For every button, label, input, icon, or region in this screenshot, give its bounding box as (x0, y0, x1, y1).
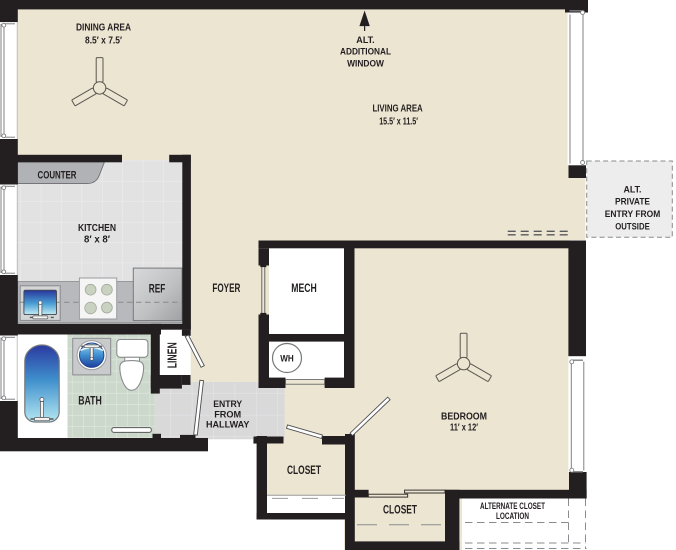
svg-text:ENTRY: ENTRY (213, 399, 243, 410)
svg-text:MECH: MECH (291, 282, 317, 295)
svg-text:WINDOW: WINDOW (347, 58, 385, 69)
svg-text:LINEN: LINEN (165, 342, 179, 368)
svg-text:ENTRY FROM: ENTRY FROM (605, 209, 661, 220)
svg-text:15.5′ x 11.5′: 15.5′ x 11.5′ (379, 117, 418, 128)
svg-text:8′ x 8′: 8′ x 8′ (84, 235, 110, 246)
svg-text:ALT.: ALT. (356, 35, 374, 46)
svg-text:DINING AREA: DINING AREA (76, 23, 131, 34)
svg-text:KITCHEN: KITCHEN (78, 223, 116, 234)
svg-text:PRIVATE: PRIVATE (615, 197, 651, 208)
svg-text:HALLWAY: HALLWAY (206, 420, 250, 431)
svg-text:8.5′ x 7.5′: 8.5′ x 7.5′ (85, 36, 122, 47)
svg-text:FOYER: FOYER (212, 282, 240, 295)
svg-text:11′ x 12′: 11′ x 12′ (450, 423, 478, 434)
svg-text:OUTSIDE: OUTSIDE (615, 221, 650, 232)
svg-text:REF: REF (149, 283, 166, 296)
svg-text:ADDITIONAL: ADDITIONAL (340, 47, 391, 58)
svg-text:LIVING AREA: LIVING AREA (372, 104, 423, 115)
svg-text:ALTERNATE CLOSET: ALTERNATE CLOSET (480, 501, 545, 511)
svg-text:BATH: BATH (78, 394, 102, 407)
svg-text:WH: WH (280, 354, 294, 365)
svg-text:COUNTER: COUNTER (38, 169, 77, 181)
svg-text:BEDROOM: BEDROOM (441, 412, 487, 423)
svg-text:CLOSET: CLOSET (383, 504, 418, 517)
svg-text:CLOSET: CLOSET (287, 464, 322, 477)
svg-text:LOCATION: LOCATION (496, 511, 529, 521)
svg-text:ALT.: ALT. (624, 184, 642, 195)
